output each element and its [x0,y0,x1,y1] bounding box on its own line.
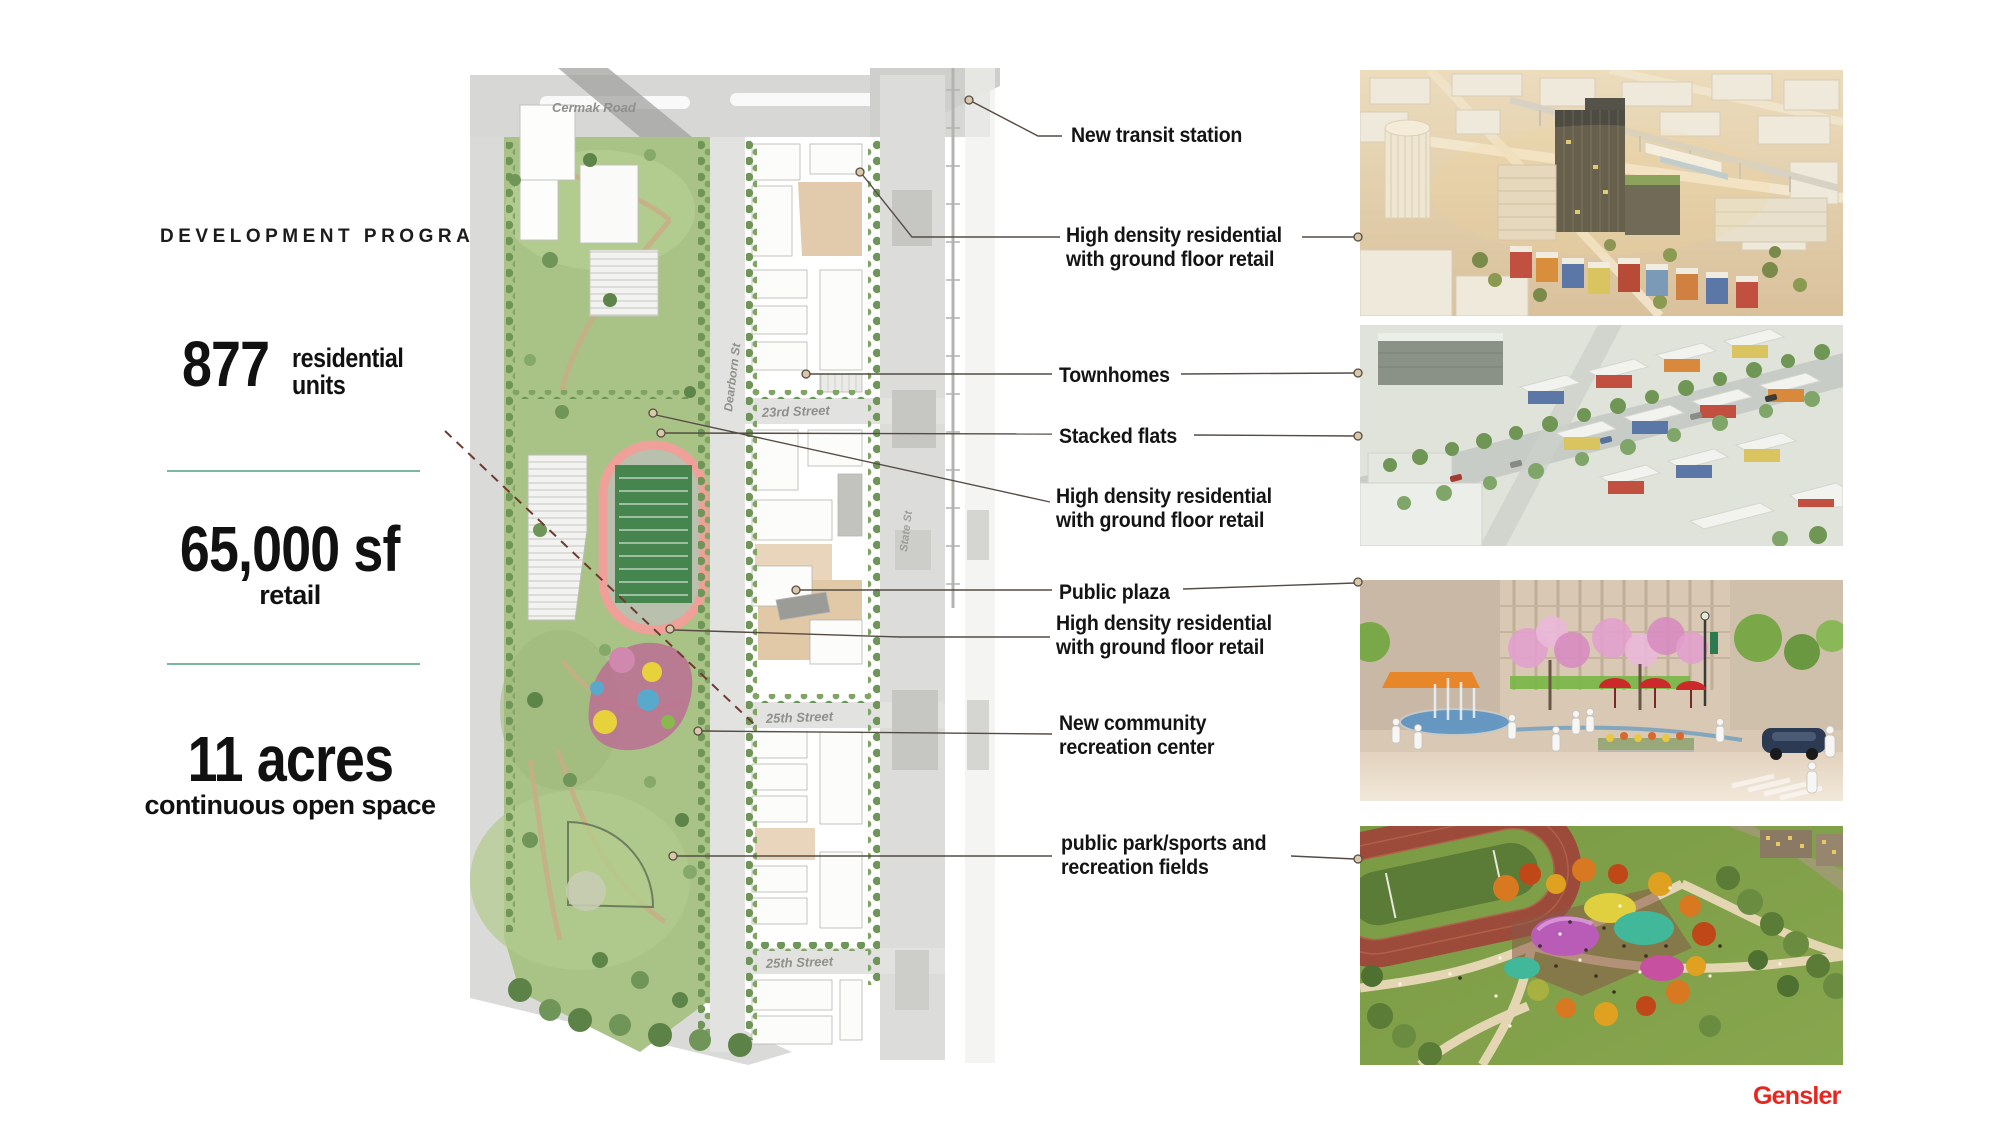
site-plan-map: Cermak Road 23rd Street Dearborn St Stat… [440,60,1000,1065]
callout-high-density-residential-3: High density residential with ground flo… [1056,612,1272,660]
presentation-slide: DEVELOPMENT PROGRAM 877 residential unit… [0,0,2000,1125]
stat-residential-units: 877 residential units [182,337,421,399]
leader-stacked-right [1194,435,1355,436]
callout-new-transit-station: New transit station [1071,124,1242,148]
street-label-23rd: 23rd Street [761,403,831,420]
development-blocks [752,144,862,1044]
stat-retail-label: retail [150,580,430,611]
divider-line [167,470,420,472]
callout-public-park: public park/sports and recreation fields [1061,832,1266,880]
transit-line [946,68,960,608]
rendering-park-image [1360,826,1843,1065]
stat-open-space-value: 11 acres [187,732,393,786]
running-track [603,445,704,630]
callout-high-density-residential-1: High density residential with ground flo… [1066,224,1282,272]
stat-residential-label: residential units [292,345,403,399]
rendering-transit-station-image [1360,70,1843,316]
apartment-building [1378,333,1503,385]
callout-high-density-residential-2: High density residential with ground flo… [1056,485,1272,533]
street-label-25th-upper: 25th Street [765,709,834,726]
divider-line [167,663,420,665]
banner [1710,632,1718,654]
callout-stacked-flats: Stacked flats [1059,425,1177,449]
stat-retail-value: 65,000 sf [180,522,400,576]
bleachers [528,455,587,620]
leader-plaza-right [1183,583,1355,589]
gensler-logo: Gensler [1753,1082,1841,1111]
rendering-public-plaza-image [1360,580,1843,801]
site-plan-illustration: Cermak Road 23rd Street Dearborn St Stat… [440,60,1000,1065]
grain-silo [1385,120,1430,218]
leader-townhomes-right [1181,373,1355,374]
leader-park-right [1291,856,1355,859]
street-label-cermak: Cermak Road [552,100,637,115]
rendering-townhomes-image [1360,325,1843,546]
callout-public-plaza: Public plaza [1059,581,1170,605]
street-label-25th-lower: 25th Street [765,954,834,971]
callout-townhomes: Townhomes [1059,364,1170,388]
stat-open-space: 11 acres continuous open space [135,732,445,821]
stat-retail: 65,000 sf retail [150,522,430,611]
parking-lot [590,250,658,316]
stat-open-space-label: continuous open space [135,790,445,821]
orange-awning [1382,672,1480,688]
stat-residential-value: 877 [182,337,269,391]
callout-recreation-center: New community recreation center [1059,712,1214,760]
